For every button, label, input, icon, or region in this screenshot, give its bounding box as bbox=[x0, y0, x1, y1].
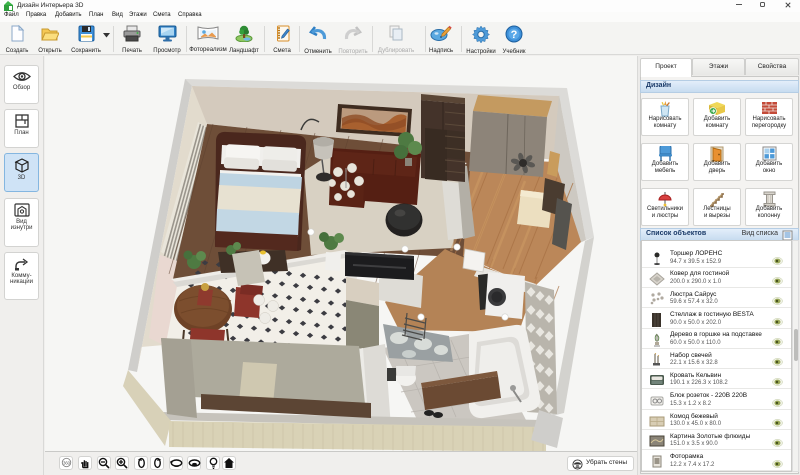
svg-text:?: ? bbox=[511, 29, 518, 41]
svg-text:360: 360 bbox=[63, 460, 71, 465]
